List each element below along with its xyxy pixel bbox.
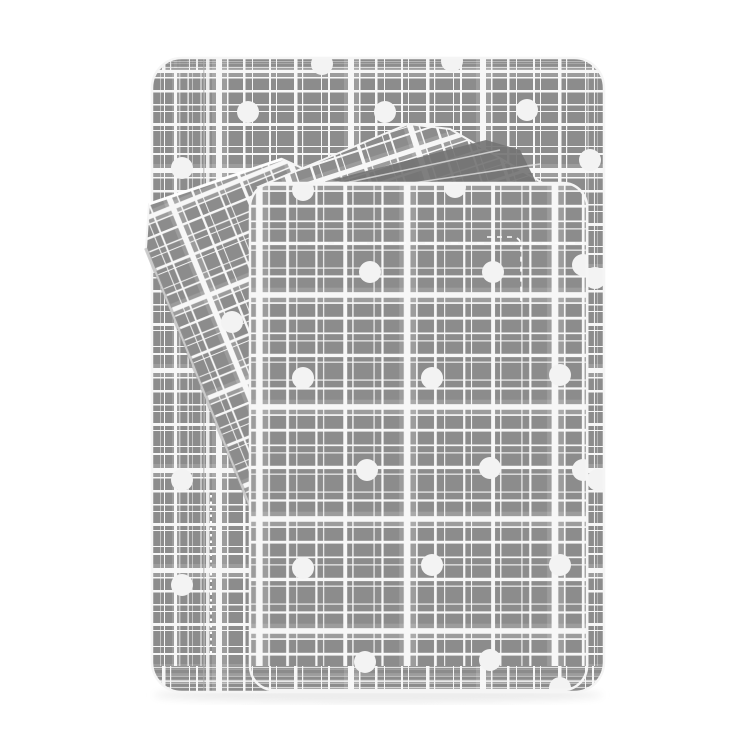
polka-dot xyxy=(354,651,376,673)
polka-dot xyxy=(374,101,396,123)
polka-dot xyxy=(171,574,193,596)
polka-dot xyxy=(292,557,314,579)
polka-dot xyxy=(359,261,381,283)
front-sheet xyxy=(250,176,594,699)
polka-dot xyxy=(421,367,443,389)
polka-dot xyxy=(549,364,571,386)
polka-dot xyxy=(421,554,443,576)
polka-dot xyxy=(441,50,463,72)
polka-dot xyxy=(171,469,193,491)
polka-dot xyxy=(292,367,314,389)
polka-dot xyxy=(237,101,259,123)
polka-dot xyxy=(171,157,193,179)
polka-dot xyxy=(311,53,333,75)
polka-dot xyxy=(516,99,538,121)
sheet-set-image xyxy=(0,0,750,750)
polka-dot xyxy=(587,469,609,491)
polka-dot xyxy=(549,554,571,576)
polka-dot xyxy=(579,149,601,171)
product-photo: Product photo of a folded grey and white… xyxy=(0,0,750,750)
polka-dot xyxy=(479,457,501,479)
polka-dot xyxy=(482,261,504,283)
polka-dot xyxy=(479,649,501,671)
polka-dot xyxy=(221,311,243,333)
polka-dot xyxy=(356,459,378,481)
